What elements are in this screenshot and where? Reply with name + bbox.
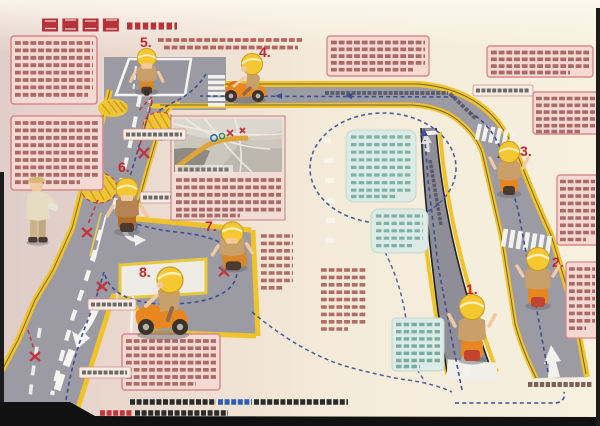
svg-text:3.: 3.	[520, 143, 532, 159]
svg-text:6.: 6.	[118, 159, 130, 175]
svg-text:8.: 8.	[139, 264, 151, 280]
svg-text:7.: 7.	[205, 218, 217, 234]
svg-text:5.: 5.	[140, 34, 152, 50]
